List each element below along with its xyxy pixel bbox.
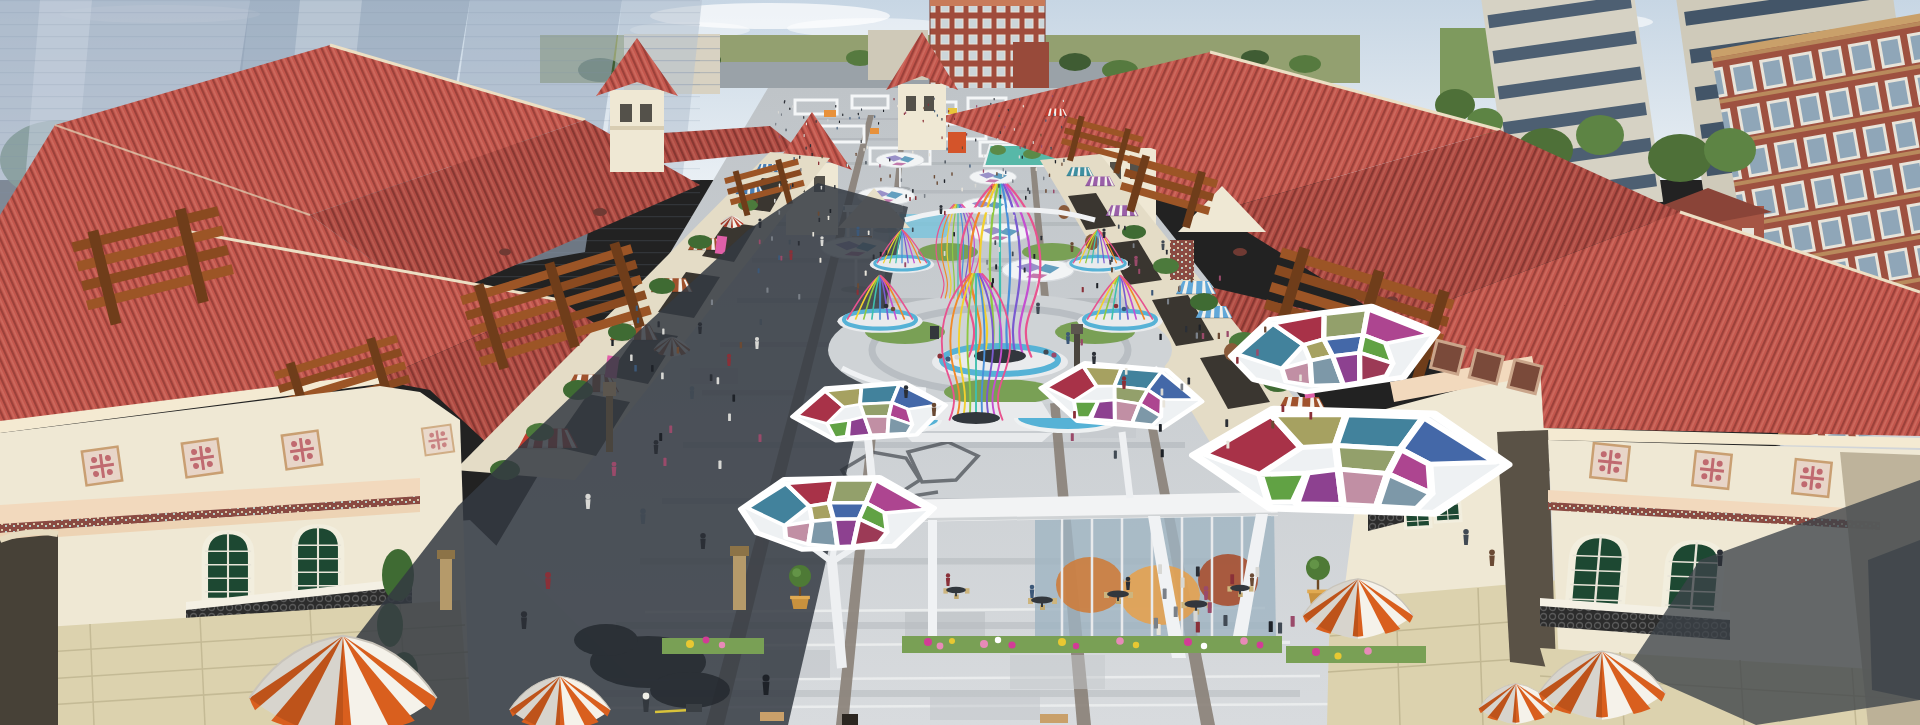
rendering-canvas <box>0 0 1920 725</box>
arched-window <box>295 526 341 594</box>
arched-window <box>205 532 251 600</box>
right-foreground-building-1 <box>1327 340 1562 725</box>
